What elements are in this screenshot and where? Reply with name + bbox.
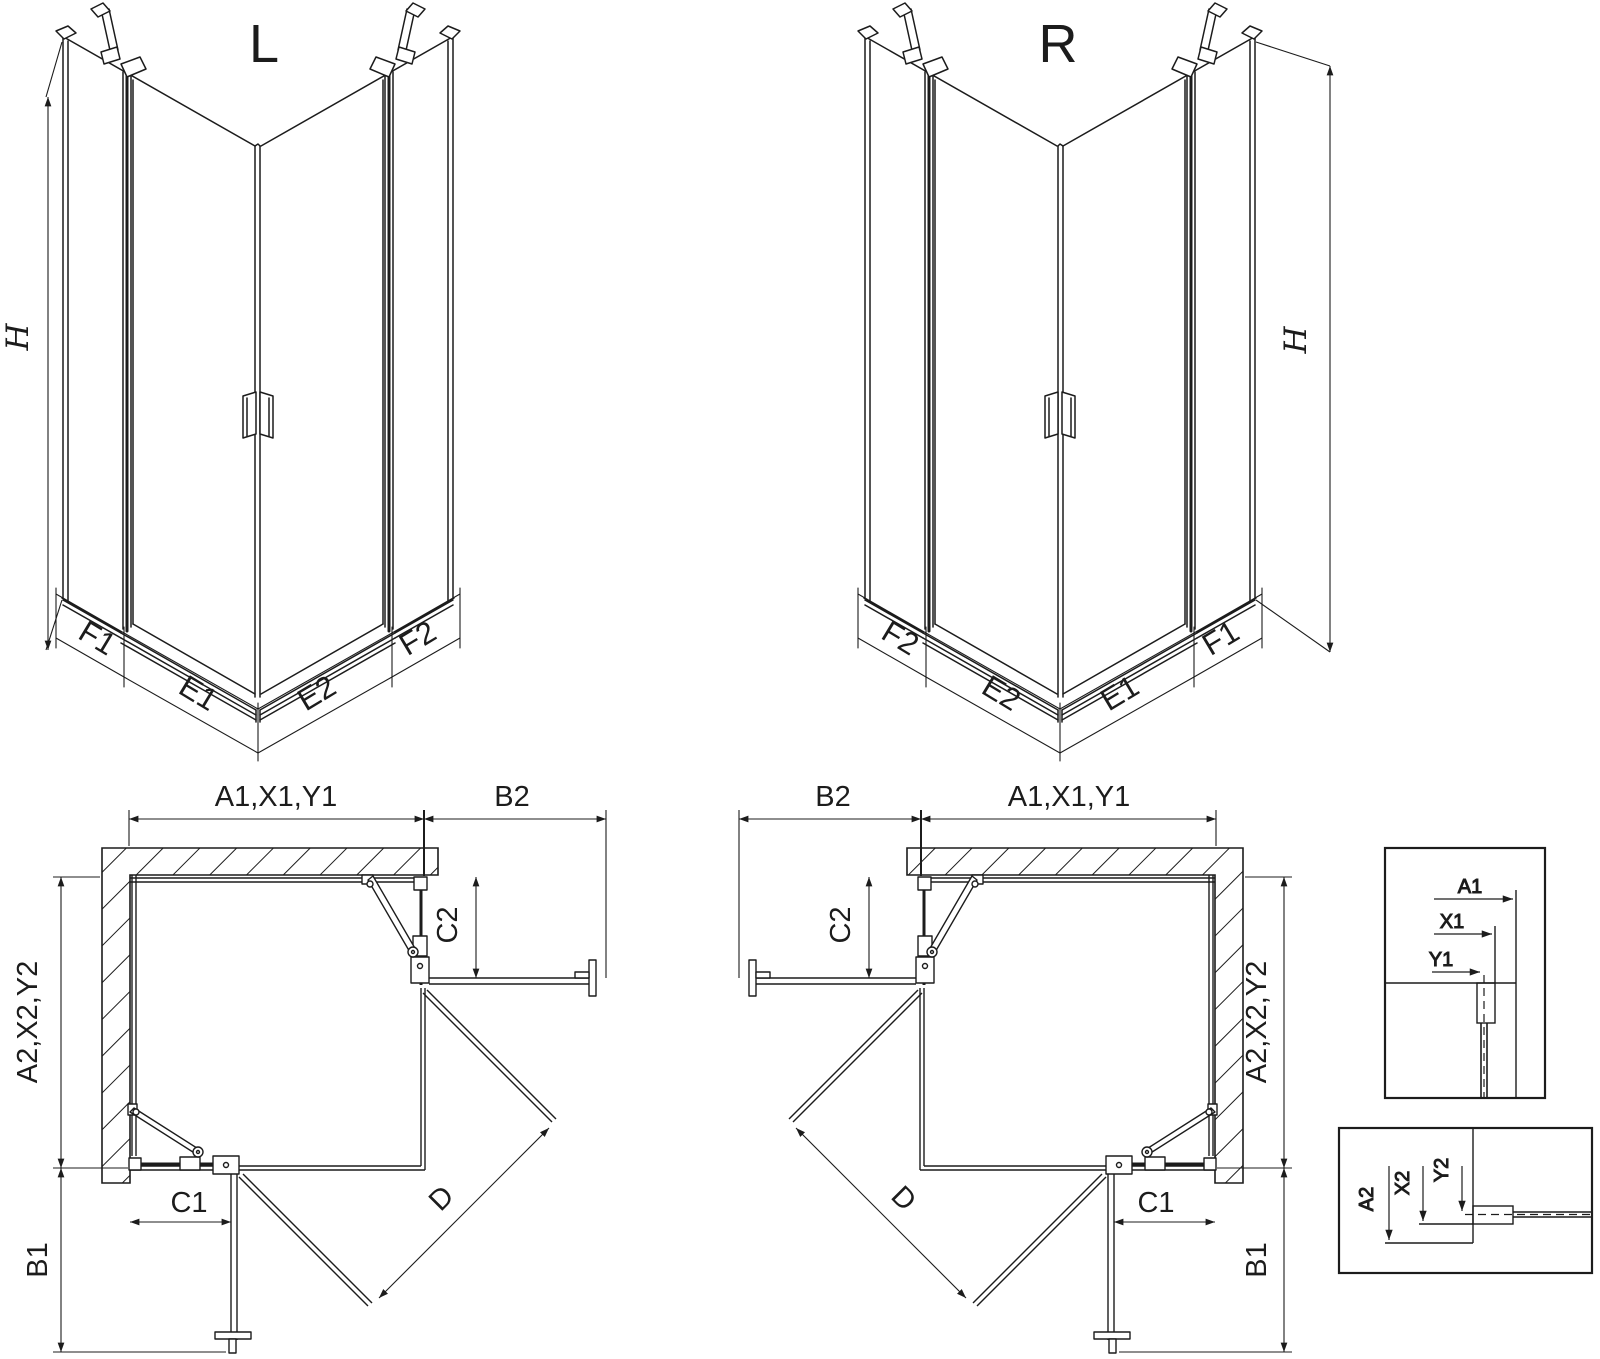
label-f2-right: F2 (876, 614, 925, 663)
plan-right-b2: B2 (815, 781, 850, 813)
label-f1-left: F1 (73, 614, 122, 663)
label-height-right: H (1278, 326, 1314, 355)
label-e1-left: E1 (173, 668, 224, 718)
detail-top-x1: X1 (1440, 911, 1464, 933)
plan-left-depth: A2,X2,Y2 (12, 961, 44, 1084)
plan-view-left: A1,X1,Y1 B2 C2 A2,X2,Y2 B1 C1 D (12, 781, 606, 1353)
iso-view-right: R H F2 E2 E1 F1 (858, 3, 1330, 761)
iso-view-left: L H F1 E1 E2 F2 (0, 3, 460, 761)
plan-left-c1: C1 (170, 1187, 207, 1219)
wall-section-left (102, 848, 438, 1183)
plan-left-b1: B1 (22, 1242, 54, 1277)
technical-drawing-canvas: L H F1 E1 E2 F2 R H F2 E2 E1 F1 A1,X1,Y1… (0, 0, 1600, 1359)
label-view-left: L (249, 14, 279, 74)
detail-bottom-x2: X2 (1392, 1171, 1414, 1195)
shower-enclosure-dimension-diagram: L H F1 E1 E2 F2 R H F2 E2 E1 F1 A1,X1,Y1… (0, 0, 1600, 1359)
plan-left-top-width: A1,X1,Y1 (215, 781, 338, 813)
detail-bottom-y2: Y2 (1431, 1158, 1453, 1182)
plan-left-c2: C2 (432, 906, 464, 943)
plan-view-right: B2 A1,X1,Y1 C2 A2,X2,Y2 B1 C1 D (739, 781, 1292, 1353)
plan-right-d: D (885, 1180, 922, 1217)
plan-left-d: D (423, 1180, 460, 1217)
detail-view-top: A1 X1 Y1 (1385, 848, 1545, 1098)
plan-right-top-width: A1,X1,Y1 (1008, 781, 1131, 813)
plan-right-c2: C2 (825, 906, 857, 943)
plan-right-depth: A2,X2,Y2 (1241, 961, 1273, 1084)
label-f2-left: F2 (393, 614, 442, 663)
label-view-right: R (1039, 14, 1078, 74)
plan-right-b1: B1 (1241, 1242, 1273, 1277)
label-f1-right: F1 (1196, 614, 1245, 663)
plan-left-b2: B2 (494, 781, 529, 813)
detail-top-a1: A1 (1458, 876, 1482, 898)
plan-right-c1: C1 (1137, 1187, 1174, 1219)
detail-view-bottom: A2 X2 Y2 (1339, 1128, 1592, 1273)
detail-bottom-a2: A2 (1356, 1187, 1378, 1211)
wall-section-right (907, 848, 1243, 1183)
label-height-left: H (0, 323, 36, 352)
detail-top-y1: Y1 (1429, 949, 1453, 971)
label-e1-right: E1 (1094, 668, 1145, 718)
